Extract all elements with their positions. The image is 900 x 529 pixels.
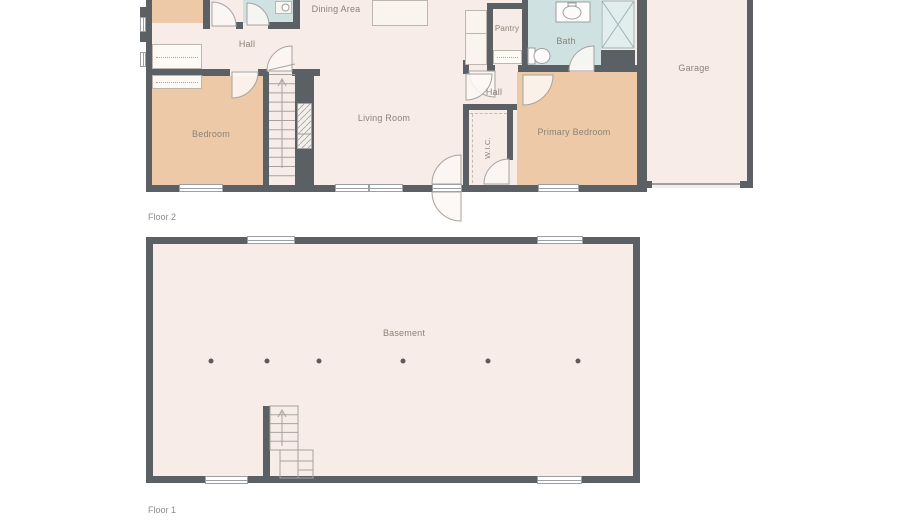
wic-rail [470, 113, 507, 114]
wall [583, 237, 640, 244]
wall [522, 0, 528, 72]
room-label-primary-bedroom: Primary Bedroom [537, 127, 610, 137]
wall [146, 476, 205, 483]
pantry-closet [493, 50, 522, 64]
window [140, 17, 146, 32]
wall [248, 476, 537, 483]
support-column [401, 359, 406, 364]
wall [528, 65, 570, 72]
room-label-hall-inner: Hall [486, 87, 502, 97]
kitchen-counter [465, 10, 487, 65]
garage-floor [637, 0, 753, 188]
wall [295, 72, 314, 185]
floorplan-canvas: Dining Area Hall Pantry Bath Garage Bedr… [0, 0, 900, 529]
wall [146, 237, 153, 483]
window [205, 476, 248, 484]
floor2-caption: Floor 2 [148, 212, 176, 222]
closet [152, 44, 202, 69]
counter-divider [466, 33, 486, 34]
wall [146, 0, 152, 192]
wall [601, 50, 635, 70]
door-arc [432, 192, 461, 221]
room-label-bath: Bath [556, 36, 575, 46]
floor1-caption: Floor 1 [148, 505, 176, 515]
window [140, 52, 146, 67]
wall [518, 65, 528, 72]
window [538, 184, 579, 192]
wall [747, 0, 753, 183]
wall [203, 22, 210, 29]
bath-floor [528, 0, 601, 66]
room-label-basement: Basement [383, 328, 425, 338]
wic-rail [472, 114, 473, 183]
wall [507, 110, 513, 160]
room-label-garage: Garage [678, 63, 709, 73]
wall [633, 237, 640, 483]
wall [461, 185, 538, 192]
wall [293, 0, 300, 29]
support-column [265, 359, 270, 364]
window [537, 476, 582, 484]
window [335, 184, 369, 192]
room-label-bedroom: Bedroom [192, 129, 230, 139]
wall [582, 476, 640, 483]
support-column [486, 359, 491, 364]
room-label-dining-area: Dining Area [312, 4, 361, 14]
washer-icon [275, 1, 292, 14]
support-column [209, 359, 214, 364]
wall [146, 185, 180, 192]
exterior-door-leaf [432, 184, 462, 192]
wall [263, 72, 269, 185]
window [179, 184, 223, 192]
dining-table [372, 0, 428, 26]
wall [637, 0, 647, 188]
support-column [576, 359, 581, 364]
wall [140, 7, 146, 17]
wall [263, 406, 270, 476]
room-label-pantry: Pantry [495, 24, 519, 34]
wall [403, 185, 432, 192]
wall [295, 237, 537, 244]
support-column [317, 359, 322, 364]
window [369, 184, 403, 192]
room-label-wic: W.I.C. [483, 137, 493, 159]
room-label-hall-top: Hall [239, 39, 255, 49]
wall [236, 22, 243, 29]
garage-door [652, 183, 740, 185]
bedroom-top-floor [152, 0, 203, 23]
window [537, 236, 583, 244]
basement-floor [146, 237, 640, 483]
closet [152, 75, 202, 89]
wall [487, 65, 495, 72]
wall [222, 185, 335, 192]
wall [146, 237, 247, 244]
wall [140, 32, 146, 42]
wall [463, 104, 469, 185]
room-label-living-room: Living Room [358, 113, 410, 123]
window [247, 236, 295, 244]
